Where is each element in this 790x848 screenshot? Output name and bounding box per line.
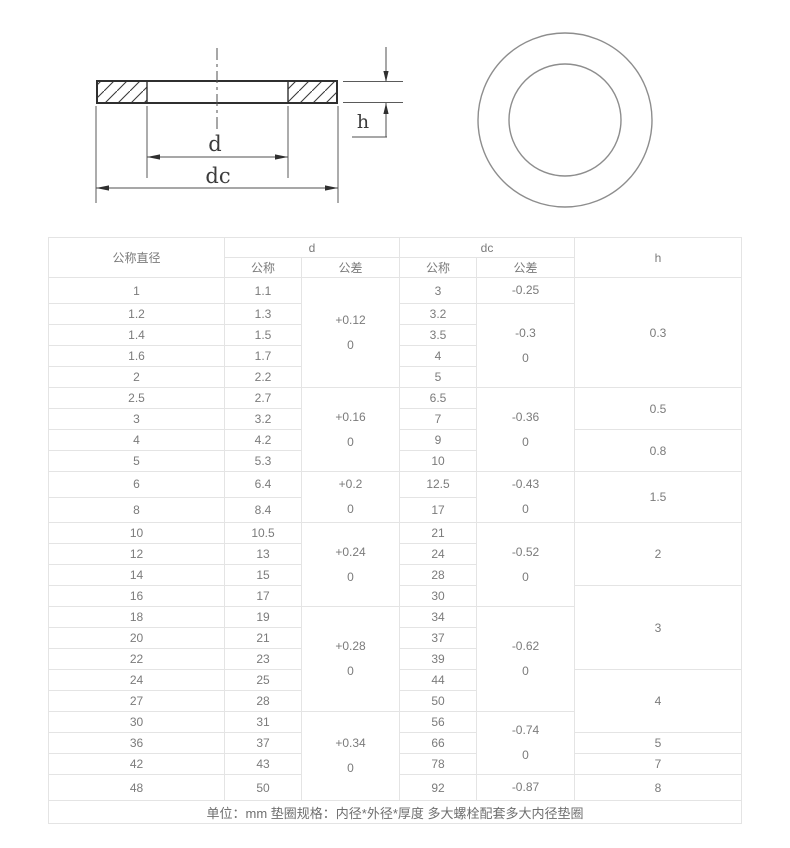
cell-dc-nominal: 30 (400, 586, 477, 607)
cell-nominal-diameter: 1.6 (49, 346, 225, 367)
cell-d-nominal: 21 (225, 628, 302, 649)
tolerance-line: 0 (477, 743, 574, 768)
tolerance-line: -0.25 (477, 278, 574, 303)
dim-label-dc: dc (205, 164, 230, 188)
table-row: 11.1+0.1203-0.250.3 (49, 278, 742, 304)
tolerance-line: -0.74 (477, 718, 574, 743)
cell-nominal-diameter: 8 (49, 497, 225, 523)
tolerance-line: 0 (477, 497, 574, 522)
cell-nominal-diameter: 5 (49, 451, 225, 472)
washer-front-view (478, 33, 652, 207)
spec-table-body: 11.1+0.1203-0.250.31.21.33.2-0.301.41.53… (49, 278, 742, 801)
tolerance-line: 0 (477, 430, 574, 455)
cell-d-nominal: 37 (225, 733, 302, 754)
cell-dc-tolerance: -0.25 (477, 278, 575, 304)
header-d-tolerance: 公差 (302, 258, 400, 278)
arrow-icon (383, 103, 388, 114)
cell-dc-nominal: 34 (400, 607, 477, 628)
cell-d-tolerance: +0.280 (302, 607, 400, 712)
cell-dc-tolerance: -0.620 (477, 607, 575, 712)
cell-nominal-diameter: 1.2 (49, 304, 225, 325)
cell-dc-nominal: 50 (400, 691, 477, 712)
tolerance-line: 0 (302, 565, 399, 590)
technical-drawing: d dc h (0, 0, 790, 232)
cell-d-nominal: 28 (225, 691, 302, 712)
spec-table-header: 公称直径 d dc h 公称 公差 公称 公差 (49, 238, 742, 278)
header-row-1: 公称直径 d dc h (49, 238, 742, 258)
cell-dc-nominal: 78 (400, 754, 477, 775)
cell-dc-nominal: 21 (400, 523, 477, 544)
cell-d-nominal: 43 (225, 754, 302, 775)
cell-nominal-diameter: 16 (49, 586, 225, 607)
washer-section-view: d dc h (96, 47, 403, 203)
tolerance-line: +0.16 (302, 405, 399, 430)
cell-h: 4 (575, 670, 742, 733)
tolerance-line: 0 (477, 565, 574, 590)
cell-d-tolerance: +0.20 (302, 472, 400, 523)
tolerance-line: -0.43 (477, 472, 574, 497)
cell-nominal-diameter: 2.5 (49, 388, 225, 409)
cell-dc-nominal: 17 (400, 497, 477, 523)
cell-nominal-diameter: 12 (49, 544, 225, 565)
dim-label-d: d (208, 132, 221, 156)
inner-circle (509, 64, 621, 176)
washer-spec-sheet: d dc h (0, 0, 790, 848)
outer-circle (478, 33, 652, 207)
cell-d-nominal: 10.5 (225, 523, 302, 544)
cell-d-nominal: 50 (225, 775, 302, 801)
cell-nominal-diameter: 10 (49, 523, 225, 544)
cell-dc-tolerance: -0.430 (477, 472, 575, 523)
cell-d-nominal: 13 (225, 544, 302, 565)
cell-dc-nominal: 28 (400, 565, 477, 586)
table-row: 66.4+0.2012.5-0.4301.5 (49, 472, 742, 498)
cell-nominal-diameter: 6 (49, 472, 225, 498)
cell-dc-nominal: 9 (400, 430, 477, 451)
cell-d-nominal: 19 (225, 607, 302, 628)
cell-h: 7 (575, 754, 742, 775)
cell-nominal-diameter: 24 (49, 670, 225, 691)
cell-nominal-diameter: 30 (49, 712, 225, 733)
washer-drawing: d dc h (0, 0, 790, 232)
tolerance-line: +0.28 (302, 634, 399, 659)
cell-h: 0.3 (575, 278, 742, 388)
cell-h: 5 (575, 733, 742, 754)
cell-dc-nominal: 6.5 (400, 388, 477, 409)
cell-h: 0.8 (575, 430, 742, 472)
tolerance-line: 0 (477, 346, 574, 371)
cell-d-nominal: 15 (225, 565, 302, 586)
arrow-icon (96, 185, 109, 190)
cell-d-nominal: 6.4 (225, 472, 302, 498)
cell-nominal-diameter: 20 (49, 628, 225, 649)
cell-nominal-diameter: 48 (49, 775, 225, 801)
cell-nominal-diameter: 36 (49, 733, 225, 754)
hatch-left (97, 81, 147, 103)
header-dc-nominal: 公称 (400, 258, 477, 278)
cell-dc-nominal: 5 (400, 367, 477, 388)
cell-d-nominal: 3.2 (225, 409, 302, 430)
cell-dc-tolerance: -0.740 (477, 712, 575, 775)
tolerance-line: -0.3 (477, 321, 574, 346)
cell-h: 8 (575, 775, 742, 801)
tolerance-line: 0 (302, 756, 399, 781)
cell-d-nominal: 1.7 (225, 346, 302, 367)
header-d-nominal: 公称 (225, 258, 302, 278)
tolerance-line: 0 (302, 659, 399, 684)
cell-dc-nominal: 4 (400, 346, 477, 367)
cell-d-nominal: 4.2 (225, 430, 302, 451)
cell-dc-tolerance: -0.360 (477, 388, 575, 472)
cell-dc-nominal: 92 (400, 775, 477, 801)
arrow-icon (383, 71, 388, 82)
hatch-right (288, 81, 337, 103)
tolerance-line: -0.36 (477, 405, 574, 430)
cell-h: 1.5 (575, 472, 742, 523)
cell-nominal-diameter: 3 (49, 409, 225, 430)
cell-dc-nominal: 12.5 (400, 472, 477, 498)
table-row: 2.52.7+0.1606.5-0.3600.5 (49, 388, 742, 409)
cell-nominal-diameter: 27 (49, 691, 225, 712)
cell-nominal-diameter: 42 (49, 754, 225, 775)
unit-note: 单位：mm 垫圈规格：内径*外径*厚度 多大螺栓配套多大内径垫圈 (49, 801, 742, 824)
spec-table: 公称直径 d dc h 公称 公差 公称 公差 11.1+0.1203-0.25… (48, 237, 742, 824)
cell-d-nominal: 1.5 (225, 325, 302, 346)
cell-d-nominal: 2.2 (225, 367, 302, 388)
cell-d-tolerance: +0.120 (302, 278, 400, 388)
cell-dc-nominal: 10 (400, 451, 477, 472)
table-row: 1010.5+0.24021-0.5202 (49, 523, 742, 544)
cell-d-nominal: 5.3 (225, 451, 302, 472)
cell-dc-nominal: 44 (400, 670, 477, 691)
header-dc: dc (400, 238, 575, 258)
cell-d-nominal: 2.7 (225, 388, 302, 409)
cell-d-nominal: 23 (225, 649, 302, 670)
cell-dc-nominal: 3.2 (400, 304, 477, 325)
footer-row: 单位：mm 垫圈规格：内径*外径*厚度 多大螺栓配套多大内径垫圈 (49, 801, 742, 824)
cell-dc-nominal: 24 (400, 544, 477, 565)
cell-dc-nominal: 66 (400, 733, 477, 754)
tolerance-line: 0 (477, 659, 574, 684)
cell-d-nominal: 1.3 (225, 304, 302, 325)
cell-dc-nominal: 37 (400, 628, 477, 649)
cell-h: 0.5 (575, 388, 742, 430)
arrow-icon (275, 154, 288, 159)
cell-nominal-diameter: 22 (49, 649, 225, 670)
dim-label-h: h (357, 111, 369, 133)
header-h: h (575, 238, 742, 278)
tolerance-line: 0 (302, 497, 399, 522)
cell-nominal-diameter: 4 (49, 430, 225, 451)
cell-nominal-diameter: 2 (49, 367, 225, 388)
spec-table-footer: 单位：mm 垫圈规格：内径*外径*厚度 多大螺栓配套多大内径垫圈 (49, 801, 742, 824)
tolerance-line: +0.12 (302, 308, 399, 333)
tolerance-line: -0.52 (477, 540, 574, 565)
tolerance-line: +0.2 (302, 472, 399, 497)
header-d: d (225, 238, 400, 258)
cell-d-nominal: 25 (225, 670, 302, 691)
tolerance-line: 0 (302, 333, 399, 358)
cell-d-nominal: 8.4 (225, 497, 302, 523)
cell-d-nominal: 31 (225, 712, 302, 733)
cell-h: 2 (575, 523, 742, 586)
cell-d-tolerance: +0.160 (302, 388, 400, 472)
cell-d-tolerance: +0.340 (302, 712, 400, 801)
cell-nominal-diameter: 1 (49, 278, 225, 304)
cell-dc-tolerance: -0.87 (477, 775, 575, 801)
header-nominal-diameter: 公称直径 (49, 238, 225, 278)
tolerance-line: +0.34 (302, 731, 399, 756)
cell-d-nominal: 1.1 (225, 278, 302, 304)
header-dc-tolerance: 公差 (477, 258, 575, 278)
cell-dc-nominal: 3.5 (400, 325, 477, 346)
tolerance-line: +0.24 (302, 540, 399, 565)
cell-nominal-diameter: 18 (49, 607, 225, 628)
cell-nominal-diameter: 1.4 (49, 325, 225, 346)
cell-dc-nominal: 39 (400, 649, 477, 670)
cell-dc-nominal: 3 (400, 278, 477, 304)
tolerance-line: -0.62 (477, 634, 574, 659)
cell-dc-nominal: 7 (400, 409, 477, 430)
cell-dc-nominal: 56 (400, 712, 477, 733)
cell-d-nominal: 17 (225, 586, 302, 607)
cell-dc-tolerance: -0.30 (477, 304, 575, 388)
tolerance-line: -0.87 (477, 775, 574, 800)
cell-nominal-diameter: 14 (49, 565, 225, 586)
arrow-icon (147, 154, 160, 159)
tolerance-line: 0 (302, 430, 399, 455)
cell-d-tolerance: +0.240 (302, 523, 400, 607)
arrow-icon (325, 185, 338, 190)
cell-dc-tolerance: -0.520 (477, 523, 575, 607)
cell-h: 3 (575, 586, 742, 670)
